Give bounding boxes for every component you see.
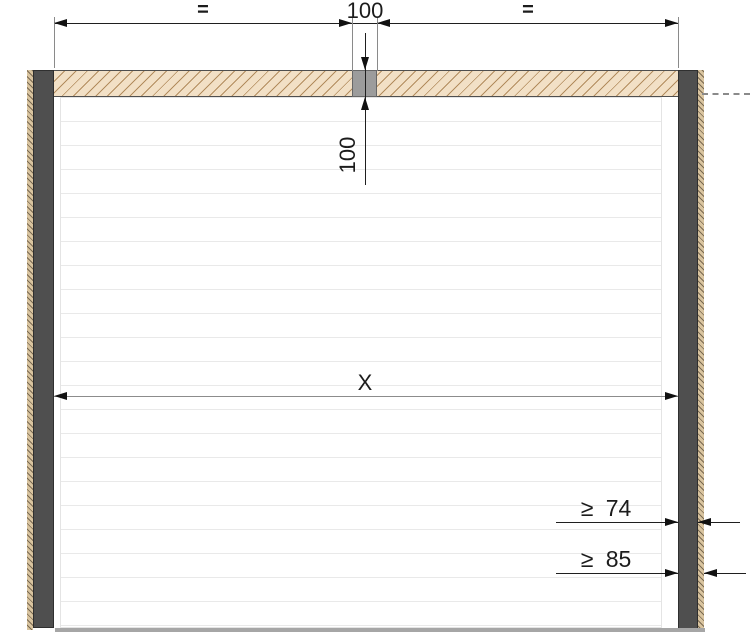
dim-label-x: X (345, 372, 385, 394)
arrow-right-icon (665, 19, 678, 27)
arrow-left-icon (704, 569, 717, 577)
arrow-left-icon (54, 19, 67, 27)
arrow-up-icon (361, 97, 369, 110)
arrow-left-icon (54, 392, 67, 400)
right-frame-post (678, 70, 698, 630)
dim85-line-left (556, 573, 678, 574)
arrow-right-icon (665, 569, 678, 577)
left-frame-post (33, 70, 54, 628)
extension-line-center-left (352, 17, 353, 71)
dim74-line-left (556, 522, 678, 523)
dim-label-100-vertical: 100 (337, 130, 365, 180)
right-wall-edge-hatch (698, 70, 704, 631)
wall-dashed-line (702, 93, 750, 95)
arrow-down-icon (361, 57, 369, 70)
arrow-left-icon (698, 518, 711, 526)
dim-label-equal-right: = (518, 0, 538, 20)
dim-label-equal-left: = (193, 0, 213, 20)
dim-label-ge-85: ≥ 85 (572, 548, 640, 571)
arrow-right-icon (665, 392, 678, 400)
opening-width-dimension-line (54, 396, 678, 397)
arrow-right-icon (665, 518, 678, 526)
dim-label-ge-74: ≥ 74 (572, 497, 640, 520)
floor-line (55, 628, 705, 632)
technical-drawing-canvas: = 100 = 100 X ≥ 74 ≥ 85 (0, 0, 750, 640)
dim-label-100-top: 100 (345, 0, 385, 22)
extension-line-right (678, 17, 679, 68)
top-dimension-line (54, 23, 678, 24)
